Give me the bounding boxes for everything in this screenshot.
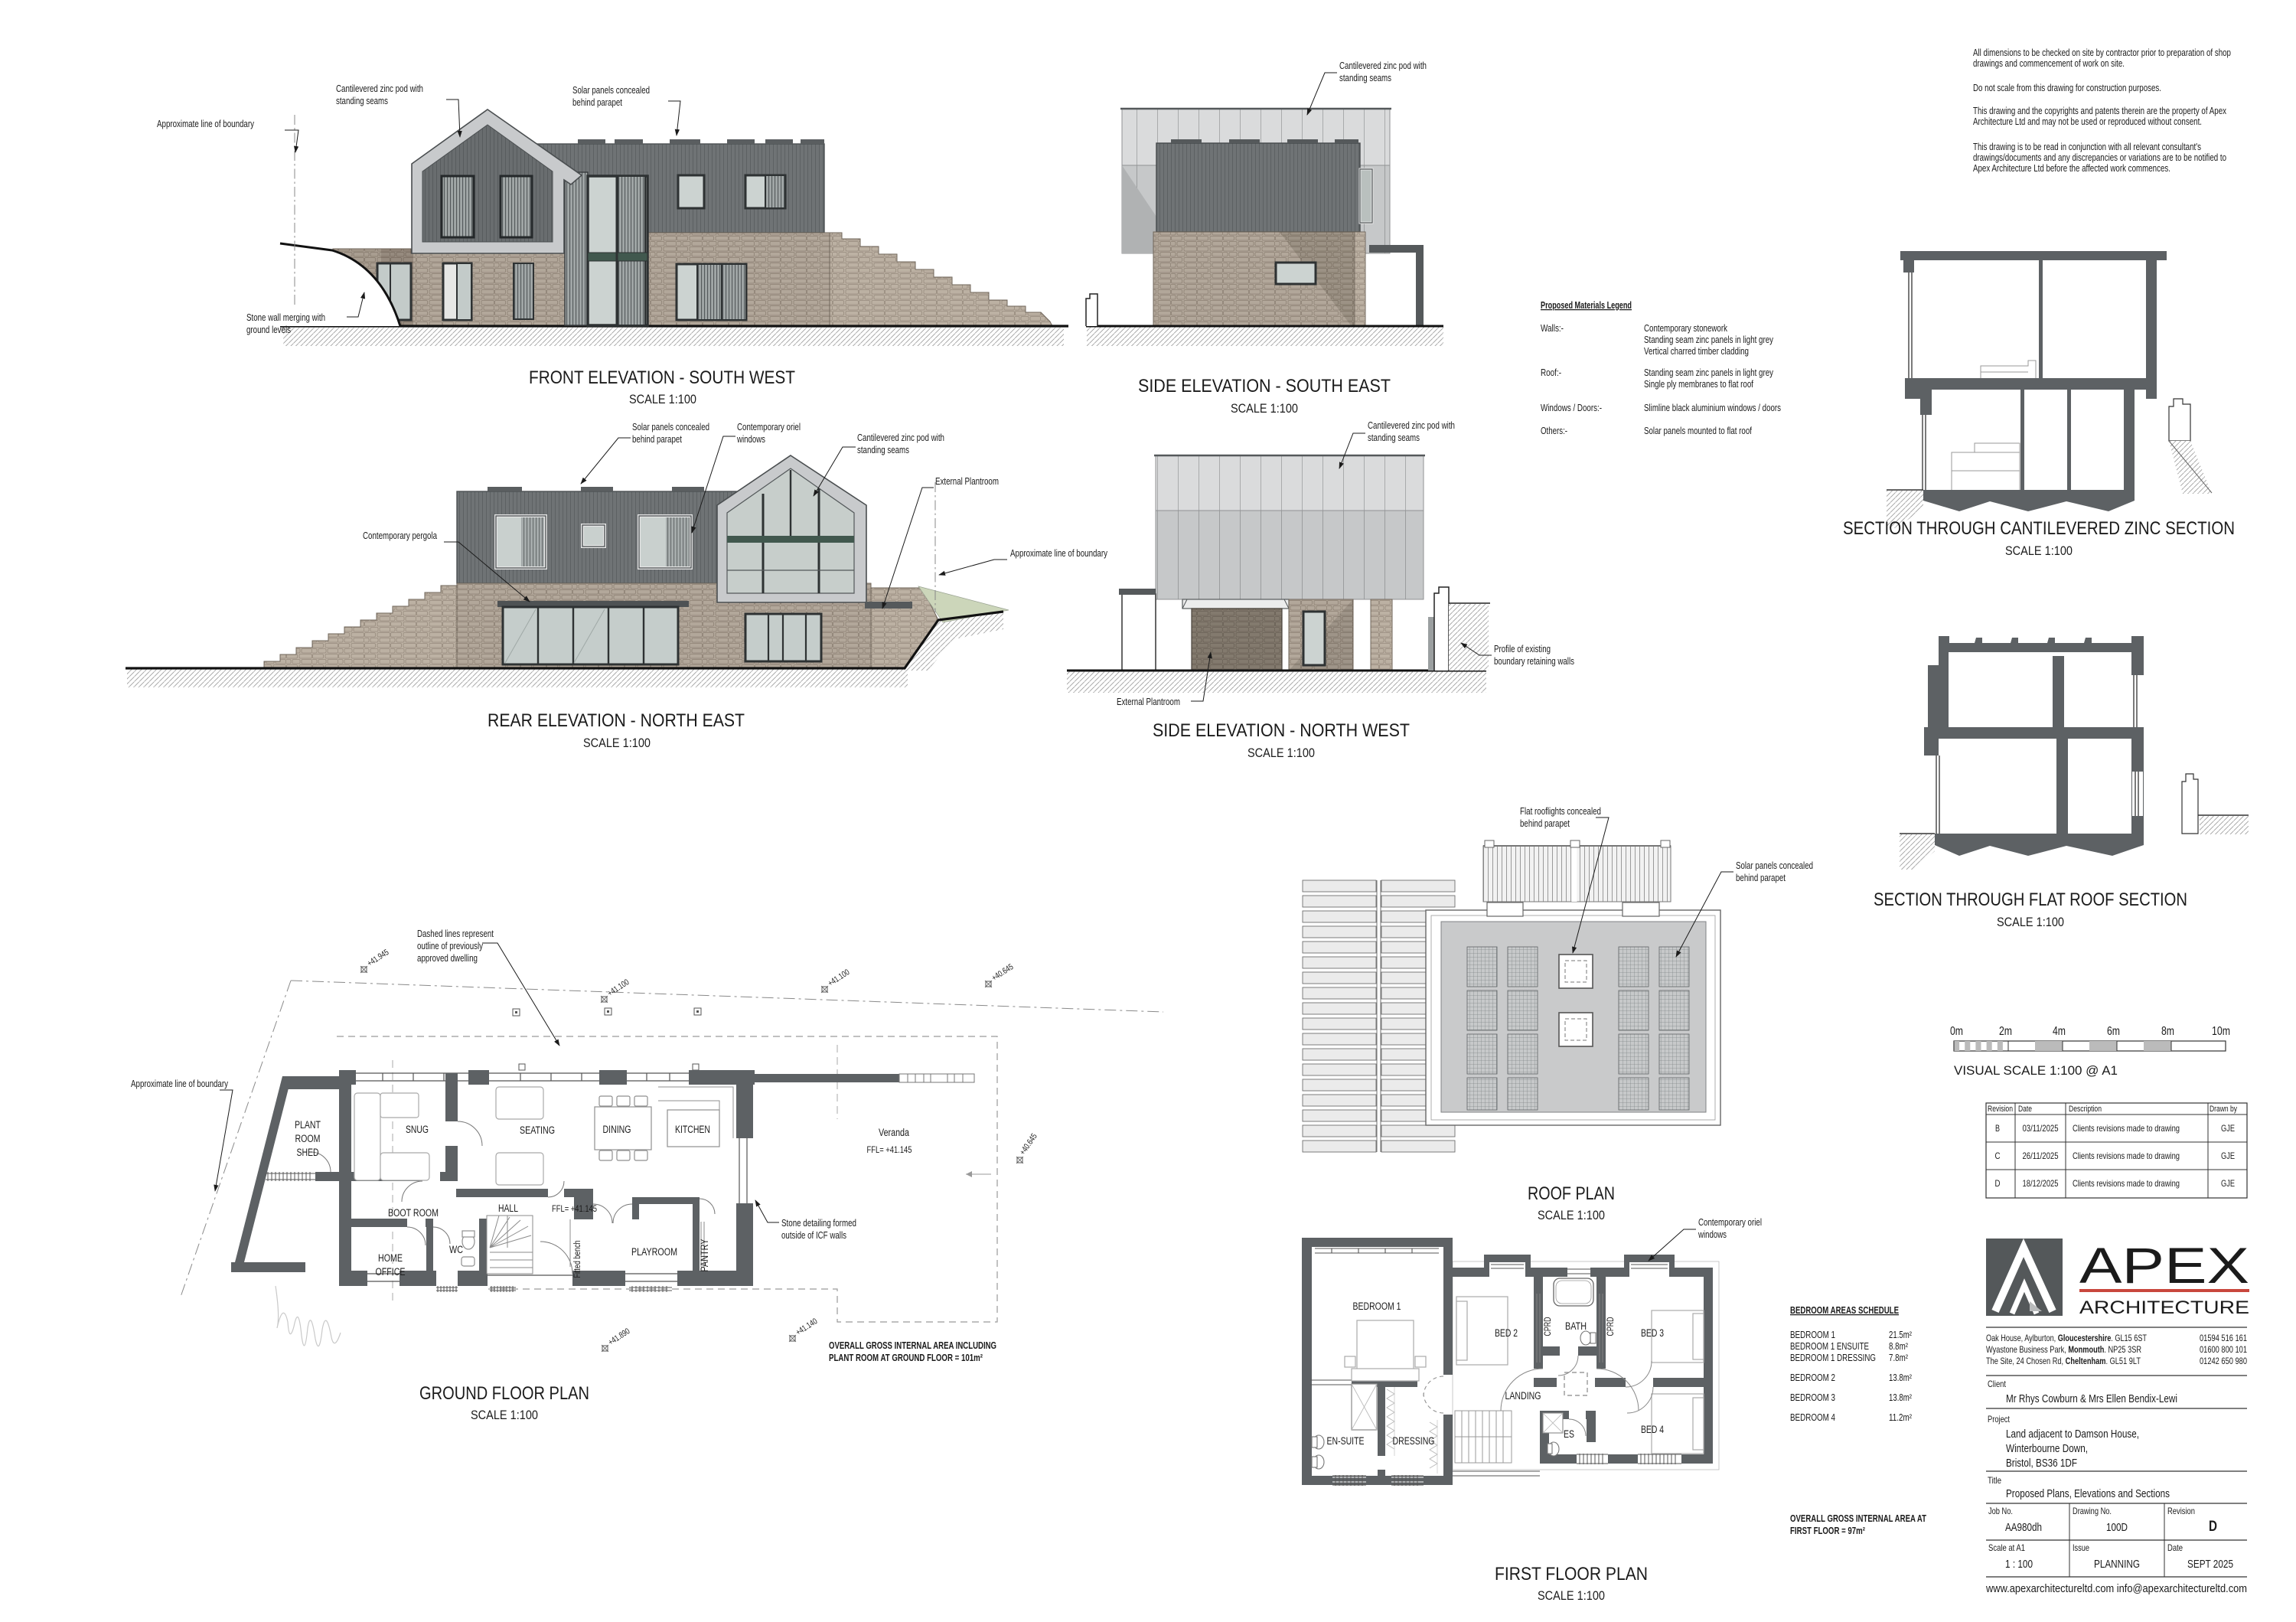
svg-text:FIRST FLOOR = 97m²: FIRST FLOOR = 97m² (1790, 1526, 1865, 1536)
svg-text:01594 516 161: 01594 516 161 (2200, 1333, 2247, 1343)
svg-text:BEDROOM 4: BEDROOM 4 (1790, 1412, 1835, 1423)
svg-text:LANDING: LANDING (1505, 1390, 1541, 1402)
svg-text:Vertical charred timber claddi: Vertical charred timber cladding (1644, 346, 1749, 357)
svg-text:standing seams: standing seams (1368, 432, 1420, 443)
svg-text:21.5m²: 21.5m² (1889, 1330, 1912, 1340)
svg-text:External Plantroom: External Plantroom (1117, 697, 1180, 707)
svg-text:EN-SUITE: EN-SUITE (1327, 1435, 1365, 1447)
svg-text:SNUG: SNUG (406, 1124, 429, 1135)
svg-text:Clients revisions made to draw: Clients revisions made to drawing (2073, 1150, 2180, 1161)
svg-text:Flat rooflights concealed: Flat rooflights concealed (1520, 806, 1601, 817)
svg-text:SIDE ELEVATION - SOUTH EAST: SIDE ELEVATION - SOUTH EAST (1138, 376, 1391, 397)
svg-text:FFL= +41.145: FFL= +41.145 (552, 1203, 597, 1214)
svg-text:Stone wall merging with: Stone wall merging with (246, 312, 325, 323)
svg-text:HALL: HALL (498, 1203, 518, 1214)
svg-text:ARCHITECTURE: ARCHITECTURE (2079, 1297, 2249, 1318)
svg-text:PLANNING: PLANNING (2094, 1558, 2140, 1571)
svg-text:CPRD: CPRD (1606, 1317, 1616, 1336)
svg-text:Bristol, BS36 1DF: Bristol, BS36 1DF (2006, 1457, 2077, 1470)
svg-text:HOME: HOME (378, 1252, 403, 1264)
svg-text:Drawn by: Drawn by (2210, 1105, 2237, 1114)
svg-text:BEDROOM 1 DRESSING: BEDROOM 1 DRESSING (1790, 1353, 1876, 1363)
svg-text:REAR ELEVATION - NORTH EAST: REAR ELEVATION - NORTH EAST (488, 710, 745, 731)
svg-text:Clients revisions made to draw: Clients revisions made to drawing (2073, 1178, 2180, 1189)
svg-text:PLAYROOM: PLAYROOM (631, 1246, 677, 1258)
svg-text:Cantilevered zinc pod with: Cantilevered zinc pod with (1368, 420, 1455, 431)
svg-text:FRONT ELEVATION - SOUTH WEST: FRONT ELEVATION - SOUTH WEST (529, 367, 795, 388)
svg-text:13.8m²: 13.8m² (1889, 1372, 1912, 1383)
svg-text:18/12/2025: 18/12/2025 (2023, 1178, 2059, 1189)
svg-text:Date: Date (2167, 1542, 2183, 1553)
svg-text:standing seams: standing seams (1339, 73, 1391, 83)
svg-text:Architecture Ltd and may not b: Architecture Ltd and may not be used or … (1973, 116, 2202, 127)
svg-text:VISUAL SCALE 1:100 @ A1: VISUAL SCALE 1:100 @ A1 (1954, 1063, 2118, 1078)
svg-text:2m: 2m (1999, 1025, 2012, 1038)
svg-text:8m: 8m (2161, 1025, 2174, 1038)
svg-text:Contemporary oriel: Contemporary oriel (737, 422, 801, 432)
svg-text:4m: 4m (2053, 1025, 2066, 1038)
svg-text:Contemporary oriel: Contemporary oriel (1698, 1217, 1762, 1228)
svg-text:Apex Architecture Ltd before t: Apex Architecture Ltd before the affecte… (1973, 163, 2170, 174)
svg-text:SCALE 1:100: SCALE 1:100 (1997, 915, 2064, 929)
svg-text:BED 2: BED 2 (1495, 1327, 1518, 1339)
svg-text:WC: WC (449, 1244, 463, 1255)
svg-text:behind parapet: behind parapet (572, 97, 622, 108)
svg-text:Description: Description (2069, 1105, 2102, 1114)
svg-text:Revision: Revision (1988, 1105, 2013, 1114)
svg-text:drawings/documents and any dis: drawings/documents and any discrepancies… (1973, 152, 2226, 163)
svg-text:The Site, 24 Chosen Rd, Chelte: The Site, 24 Chosen Rd, Cheltenham. GL51… (1986, 1356, 2141, 1366)
svg-text:DINING: DINING (603, 1124, 631, 1135)
svg-text:SIDE ELEVATION - NORTH WEST: SIDE ELEVATION - NORTH WEST (1153, 720, 1410, 741)
svg-text:ground levels: ground levels (246, 325, 291, 335)
svg-text:Approximate line of boundary: Approximate line of boundary (131, 1079, 229, 1089)
svg-text:0m: 0m (1950, 1025, 1963, 1038)
svg-text:Cantilevered zinc pod with: Cantilevered zinc pod with (857, 432, 944, 443)
svg-text:11.2m²: 11.2m² (1889, 1412, 1912, 1423)
svg-text:BOOT ROOM: BOOT ROOM (388, 1207, 439, 1219)
svg-text:03/11/2025: 03/11/2025 (2023, 1123, 2059, 1134)
svg-text:SCALE 1:100: SCALE 1:100 (1231, 401, 1298, 416)
svg-text:BEDROOM 2: BEDROOM 2 (1790, 1372, 1835, 1383)
svg-text:SCALE 1:100: SCALE 1:100 (2005, 543, 2073, 558)
svg-text:Winterbourne Down,: Winterbourne Down, (2006, 1442, 2088, 1455)
svg-text:Fitted bench: Fitted bench (573, 1241, 582, 1278)
svg-text:7.8m²: 7.8m² (1889, 1353, 1908, 1363)
svg-text:Client: Client (1988, 1379, 2007, 1389)
svg-text:SEATING: SEATING (520, 1124, 555, 1136)
svg-text:SCALE 1:100: SCALE 1:100 (1247, 746, 1315, 760)
svg-text:Proposed Plans, Elevations and: Proposed Plans, Elevations and Sections (2006, 1487, 2170, 1500)
svg-text:Contemporary stonework: Contemporary stonework (1644, 323, 1728, 334)
svg-text:APEX: APEX (2079, 1237, 2249, 1294)
svg-text:GJE: GJE (2221, 1150, 2235, 1161)
svg-text:8.8m²: 8.8m² (1889, 1341, 1908, 1352)
svg-text:OVERALL GROSS INTERNAL AREA AT: OVERALL GROSS INTERNAL AREA AT (1790, 1513, 1926, 1524)
svg-text:CPRD: CPRD (1544, 1317, 1553, 1336)
svg-text:BEDROOM 1 ENSUITE: BEDROOM 1 ENSUITE (1790, 1341, 1869, 1352)
svg-text:26/11/2025: 26/11/2025 (2023, 1150, 2059, 1161)
svg-text:approved dwelling: approved dwelling (417, 953, 478, 964)
svg-text:SHED: SHED (297, 1147, 319, 1158)
svg-text:behind parapet: behind parapet (1520, 818, 1570, 829)
svg-text:Land adjacent to Damson House,: Land adjacent to Damson House, (2006, 1428, 2139, 1441)
svg-text:Job No.: Job No. (1988, 1506, 2013, 1516)
svg-text:GJE: GJE (2221, 1123, 2235, 1134)
svg-text:Revision: Revision (2167, 1506, 2195, 1516)
svg-text:SECTION THROUGH CANTILEVERED Z: SECTION THROUGH CANTILEVERED ZINC SECTIO… (1843, 518, 2235, 539)
svg-text:6m: 6m (2107, 1025, 2120, 1038)
svg-text:BEDROOM 3: BEDROOM 3 (1790, 1392, 1835, 1403)
svg-text:PLANT: PLANT (295, 1119, 321, 1131)
svg-text:Standing seam zinc panels in l: Standing seam zinc panels in light grey (1644, 335, 1774, 345)
svg-text:BEDROOM AREAS SCHEDULE: BEDROOM AREAS SCHEDULE (1790, 1305, 1899, 1316)
svg-text:DRESSING: DRESSING (1393, 1435, 1435, 1447)
svg-text:Profile of existing: Profile of existing (1494, 644, 1551, 654)
svg-text:All dimensions to be checked o: All dimensions to be checked on site by … (1973, 47, 2231, 58)
svg-text:Approximate line of boundary: Approximate line of boundary (1010, 548, 1108, 559)
svg-text:SCALE 1:100: SCALE 1:100 (471, 1408, 538, 1422)
svg-text:Mr Rhys Cowburn & Mrs Ellen Be: Mr Rhys Cowburn & Mrs Ellen Bendix-Lewi (2006, 1392, 2177, 1405)
svg-text:Single ply membranes to flat r: Single ply membranes to flat roof (1644, 379, 1753, 390)
svg-text:Wyastone Business Park, Monmou: Wyastone Business Park, Monmouth. NP25 3… (1986, 1344, 2141, 1355)
svg-text:Project: Project (1988, 1414, 2011, 1425)
svg-text:Standing seam zinc panels in l: Standing seam zinc panels in light grey (1644, 367, 1774, 378)
svg-text:Scale at A1: Scale at A1 (1988, 1542, 2025, 1553)
svg-text:10m: 10m (2212, 1025, 2230, 1038)
svg-text:Others:-: Others:- (1541, 426, 1567, 436)
svg-text:Slimline black aluminium windo: Slimline black aluminium windows / doors (1644, 403, 1781, 413)
svg-text:boundary retaining walls: boundary retaining walls (1494, 656, 1574, 667)
svg-text:Roof:-: Roof:- (1541, 367, 1561, 378)
svg-text:D: D (2209, 1519, 2217, 1535)
svg-text:outline of previously: outline of previously (417, 941, 484, 951)
svg-text:SCALE 1:100: SCALE 1:100 (629, 392, 696, 406)
svg-text:PANTRY: PANTRY (699, 1239, 710, 1272)
svg-text:Contemporary pergola: Contemporary pergola (363, 530, 437, 541)
svg-text:External Plantroom: External Plantroom (935, 476, 999, 487)
svg-text:Do not scale from this drawing: Do not scale from this drawing for const… (1973, 83, 2161, 93)
svg-text:behind parapet: behind parapet (1736, 873, 1786, 883)
svg-text:Solar panels concealed: Solar panels concealed (1736, 860, 1813, 871)
svg-text:BEDROOM 1: BEDROOM 1 (1353, 1301, 1401, 1312)
svg-text:behind parapet: behind parapet (632, 434, 682, 445)
svg-text:outside of ICF walls: outside of ICF walls (781, 1230, 846, 1241)
svg-text:OVERALL GROSS INTERNAL AREA IN: OVERALL GROSS INTERNAL AREA INCLUDING (829, 1340, 996, 1351)
svg-text:Drawing No.: Drawing No. (2073, 1506, 2112, 1516)
svg-text:This drawing is to be read in: This drawing is to be read in conjunctio… (1973, 142, 2201, 152)
svg-text:C: C (1995, 1150, 2001, 1161)
svg-text:Solar panels mounted to flat r: Solar panels mounted to flat roof (1644, 426, 1752, 436)
svg-text:100D: 100D (2106, 1521, 2128, 1534)
svg-text:ROOF PLAN: ROOF PLAN (1528, 1183, 1615, 1204)
svg-text:Solar panels concealed: Solar panels concealed (572, 85, 650, 96)
svg-text:OFFICE: OFFICE (376, 1266, 406, 1278)
svg-text:Walls:-: Walls:- (1541, 323, 1564, 334)
svg-text:Proposed Materials Legend: Proposed Materials Legend (1541, 300, 1632, 311)
svg-text:D: D (1995, 1178, 2001, 1189)
svg-text:Title: Title (1988, 1475, 2001, 1486)
svg-text:This drawing and the copyright: This drawing and the copyrights and pate… (1973, 106, 2227, 116)
svg-text:B: B (1995, 1123, 2000, 1134)
svg-text:standing seams: standing seams (336, 96, 388, 106)
svg-text:1 : 100: 1 : 100 (2005, 1558, 2033, 1571)
svg-text:SECTION THROUGH FLAT ROOF SECT: SECTION THROUGH FLAT ROOF SECTION (1874, 889, 2187, 910)
svg-text:windows: windows (1698, 1229, 1727, 1240)
svg-text:SCALE 1:100: SCALE 1:100 (1538, 1588, 1605, 1603)
svg-text:Issue: Issue (2073, 1542, 2089, 1553)
svg-text:FIRST FLOOR PLAN: FIRST FLOOR PLAN (1495, 1564, 1648, 1584)
svg-text:FFL= +41.145: FFL= +41.145 (867, 1144, 912, 1155)
svg-text:Date: Date (2018, 1105, 2032, 1114)
svg-text:01600 800 101: 01600 800 101 (2200, 1344, 2247, 1355)
svg-text:windows: windows (736, 434, 765, 445)
svg-text:GROUND FLOOR PLAN: GROUND FLOOR PLAN (419, 1383, 589, 1404)
svg-text:13.8m²: 13.8m² (1889, 1392, 1912, 1403)
svg-text:drawings and commencement of w: drawings and commencement of work on sit… (1973, 58, 2125, 69)
svg-text:Clients revisions made to draw: Clients revisions made to drawing (2073, 1123, 2180, 1134)
svg-text:SEPT 2025: SEPT 2025 (2187, 1558, 2233, 1571)
svg-text:www.apexarchitectureltd.com: www.apexarchitectureltd.com info@apexarc… (1985, 1583, 2247, 1595)
svg-text:AA980dh: AA980dh (2005, 1521, 2042, 1534)
svg-text:Windows / Doors:-: Windows / Doors:- (1541, 403, 1602, 413)
svg-text:SCALE 1:100: SCALE 1:100 (583, 736, 651, 750)
svg-text:Solar panels concealed: Solar panels concealed (632, 422, 709, 432)
svg-text:standing seams: standing seams (857, 445, 909, 455)
svg-text:Cantilevered zinc pod with: Cantilevered zinc pod with (1339, 60, 1427, 71)
svg-text:BED 4: BED 4 (1641, 1424, 1664, 1435)
svg-text:Dashed lines represent: Dashed lines represent (417, 928, 494, 939)
svg-text:ROOM: ROOM (295, 1133, 321, 1144)
svg-text:SCALE 1:100: SCALE 1:100 (1538, 1208, 1605, 1222)
svg-text:Approximate line of boundary: Approximate line of boundary (157, 119, 255, 129)
svg-text:GJE: GJE (2221, 1178, 2235, 1189)
svg-text:BATH: BATH (1565, 1320, 1587, 1332)
svg-text:PLANT ROOM AT GROUND FLOOR = 1: PLANT ROOM AT GROUND FLOOR = 101m² (829, 1353, 983, 1363)
svg-text:Stone detailing formed: Stone detailing formed (781, 1218, 856, 1229)
svg-text:Cantilevered zinc pod with: Cantilevered zinc pod with (336, 83, 423, 94)
svg-text:Veranda: Veranda (879, 1127, 909, 1138)
svg-text:01242 650 980: 01242 650 980 (2200, 1356, 2247, 1366)
svg-text:KITCHEN: KITCHEN (675, 1124, 710, 1135)
svg-text:BEDROOM 1: BEDROOM 1 (1790, 1330, 1835, 1340)
svg-text:Oak House, Aylburton, Gloucest: Oak House, Aylburton, Gloucestershire. G… (1986, 1333, 2148, 1343)
svg-text:ES: ES (1564, 1428, 1574, 1440)
svg-text:BED 3: BED 3 (1641, 1327, 1664, 1339)
